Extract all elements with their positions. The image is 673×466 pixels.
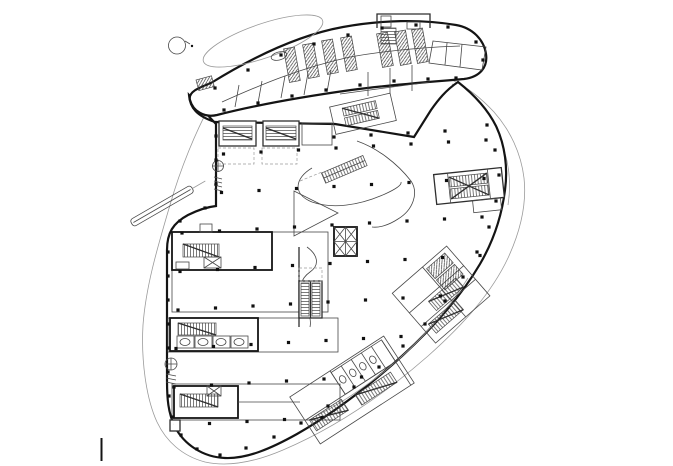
column-dot (291, 264, 294, 267)
column-dot (246, 68, 249, 71)
column-dot (324, 339, 327, 342)
column-dot (247, 381, 250, 384)
column-dot (259, 150, 262, 153)
column-dot (454, 76, 457, 79)
column-dot (403, 258, 406, 261)
column-dot (443, 299, 446, 302)
column-dot (392, 79, 395, 82)
column-dot (406, 131, 409, 134)
column-dot (195, 447, 198, 450)
column-dot (326, 404, 329, 407)
column-dot (290, 94, 293, 97)
column-dot (272, 435, 275, 438)
column-dot (213, 86, 216, 89)
column-dot (482, 177, 485, 180)
column-dot (216, 268, 219, 271)
column-dot (174, 347, 177, 350)
column-dot (312, 42, 315, 45)
column-dot (176, 308, 179, 311)
column-dot (472, 369, 475, 372)
column-dot (214, 182, 217, 185)
column-dot (368, 221, 371, 224)
column-dot (362, 337, 365, 340)
column-dot (167, 394, 170, 397)
column-dot (414, 23, 417, 26)
column-dot (485, 123, 488, 126)
column-dot (443, 217, 446, 220)
column-dot (332, 185, 335, 188)
column-dot (443, 129, 446, 132)
column-dot (372, 144, 375, 147)
column-dot (474, 331, 477, 334)
column-dot (289, 302, 292, 305)
column-dot (287, 341, 290, 344)
column-dot (293, 225, 296, 228)
column-dot (364, 298, 367, 301)
column-dot (208, 422, 211, 425)
column-dot (461, 275, 464, 278)
column-dot (249, 343, 252, 346)
column-dot (166, 274, 169, 277)
column-dot (478, 254, 481, 257)
column-dot (409, 142, 412, 145)
column-dot (423, 322, 426, 325)
column-dot (179, 433, 182, 436)
column-dot (352, 385, 355, 388)
roof-stair-hatch (381, 28, 396, 44)
column-dot (358, 83, 361, 86)
column-dot (257, 189, 260, 192)
column-dot (366, 260, 369, 263)
floor-plan (0, 0, 673, 466)
column-dot (166, 346, 169, 349)
column-dot (377, 365, 380, 368)
column-dot (285, 379, 288, 382)
column-dot (360, 375, 363, 378)
column-dot (178, 219, 181, 222)
column-dot (328, 262, 331, 265)
column-dot (299, 421, 302, 424)
column-dot (218, 453, 221, 456)
column-dot (447, 140, 450, 143)
column-dot (324, 88, 327, 91)
column-dot (480, 215, 483, 218)
column-dot (166, 250, 169, 253)
column-dot (439, 294, 442, 297)
column-dot (475, 250, 478, 253)
column-dot (214, 134, 217, 137)
column-dot (251, 304, 254, 307)
column-dot (244, 446, 247, 449)
column-dot (446, 25, 449, 28)
column-dot (322, 377, 325, 380)
column-dot (497, 173, 500, 176)
column-dot (210, 383, 213, 386)
column-dot (433, 410, 436, 413)
column-dot (245, 420, 248, 423)
column-dot (369, 133, 372, 136)
column-dot (395, 412, 398, 415)
column-dot (256, 101, 259, 104)
column-dot (470, 408, 473, 411)
column-dot (170, 415, 173, 418)
column-dot (180, 231, 183, 234)
column-dot (332, 135, 335, 138)
column-dot (437, 333, 440, 336)
column-dot (222, 108, 225, 111)
column-dot (493, 148, 496, 151)
column-dot (399, 335, 402, 338)
column-dot (326, 300, 329, 303)
column-dot (481, 58, 484, 61)
column-dot (445, 179, 448, 182)
column-dot (166, 298, 169, 301)
column-dot (283, 418, 286, 421)
column-dot (203, 206, 206, 209)
column-dot (401, 344, 404, 347)
column-dot (212, 345, 215, 348)
column-dot (476, 292, 479, 295)
column-dot (435, 371, 438, 374)
central-elevator-core (334, 227, 357, 256)
column-dot (166, 322, 169, 325)
column-dot (405, 219, 408, 222)
column-dot (295, 187, 298, 190)
column-dot (218, 229, 221, 232)
column-dot (330, 223, 333, 226)
column-dot (279, 53, 282, 56)
column-dot (474, 40, 477, 43)
column-dot (397, 373, 400, 376)
column-dot (222, 152, 225, 155)
column-dot (214, 306, 217, 309)
column-dot (346, 33, 349, 36)
column-dot (220, 191, 223, 194)
floor-plan-canvas (0, 0, 673, 466)
column-dot (178, 270, 181, 273)
column-dot (166, 370, 169, 373)
column-dot (334, 146, 337, 149)
column-dot (297, 148, 300, 151)
column-dot (407, 181, 410, 184)
column-dot (441, 256, 444, 259)
column-dot (253, 266, 256, 269)
column-dot (401, 296, 404, 299)
column-dot (494, 199, 497, 202)
column-dot (426, 77, 429, 80)
column-dot (172, 385, 175, 388)
column-dot (214, 158, 217, 161)
column-dot (358, 414, 361, 417)
column-dot (487, 225, 490, 228)
column-dot (380, 26, 383, 29)
column-dot (370, 183, 373, 186)
entry-circle-symbol (169, 37, 194, 54)
column-dot (484, 138, 487, 141)
column-dot (255, 227, 258, 230)
